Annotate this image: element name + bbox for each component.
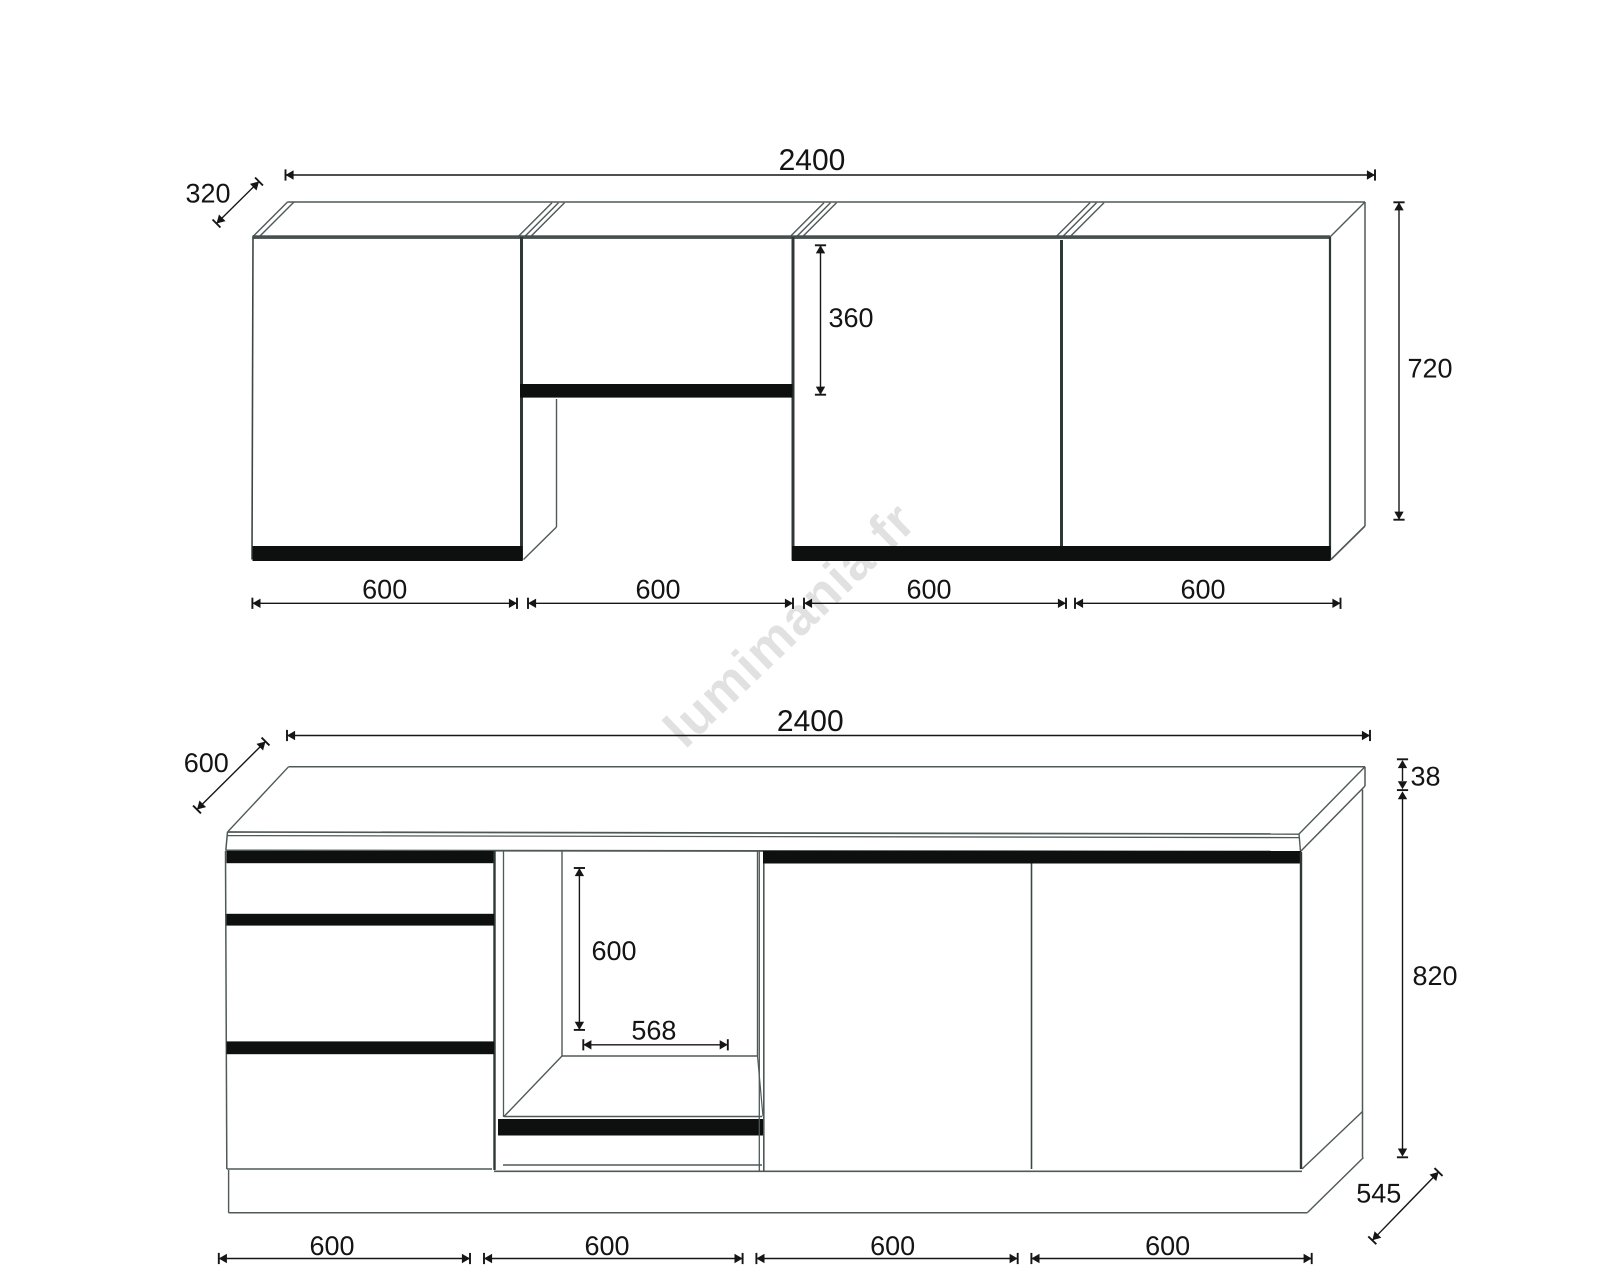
svg-text:600: 600: [592, 936, 637, 966]
svg-text:545: 545: [1356, 1178, 1401, 1208]
svg-text:568: 568: [631, 1016, 676, 1046]
svg-text:600: 600: [362, 575, 407, 605]
svg-text:600: 600: [870, 1231, 915, 1261]
svg-text:600: 600: [184, 748, 229, 778]
svg-text:38: 38: [1411, 762, 1441, 792]
svg-text:600: 600: [1145, 1231, 1190, 1261]
svg-text:600: 600: [584, 1231, 629, 1261]
svg-text:820: 820: [1413, 961, 1458, 991]
svg-text:600: 600: [906, 575, 951, 605]
svg-text:600: 600: [635, 575, 680, 605]
svg-text:600: 600: [309, 1231, 354, 1261]
svg-text:600: 600: [1180, 575, 1225, 605]
svg-text:2400: 2400: [779, 144, 846, 177]
svg-text:720: 720: [1408, 354, 1453, 384]
svg-text:360: 360: [829, 303, 874, 333]
svg-text:2400: 2400: [777, 705, 844, 738]
svg-text:320: 320: [185, 179, 230, 209]
